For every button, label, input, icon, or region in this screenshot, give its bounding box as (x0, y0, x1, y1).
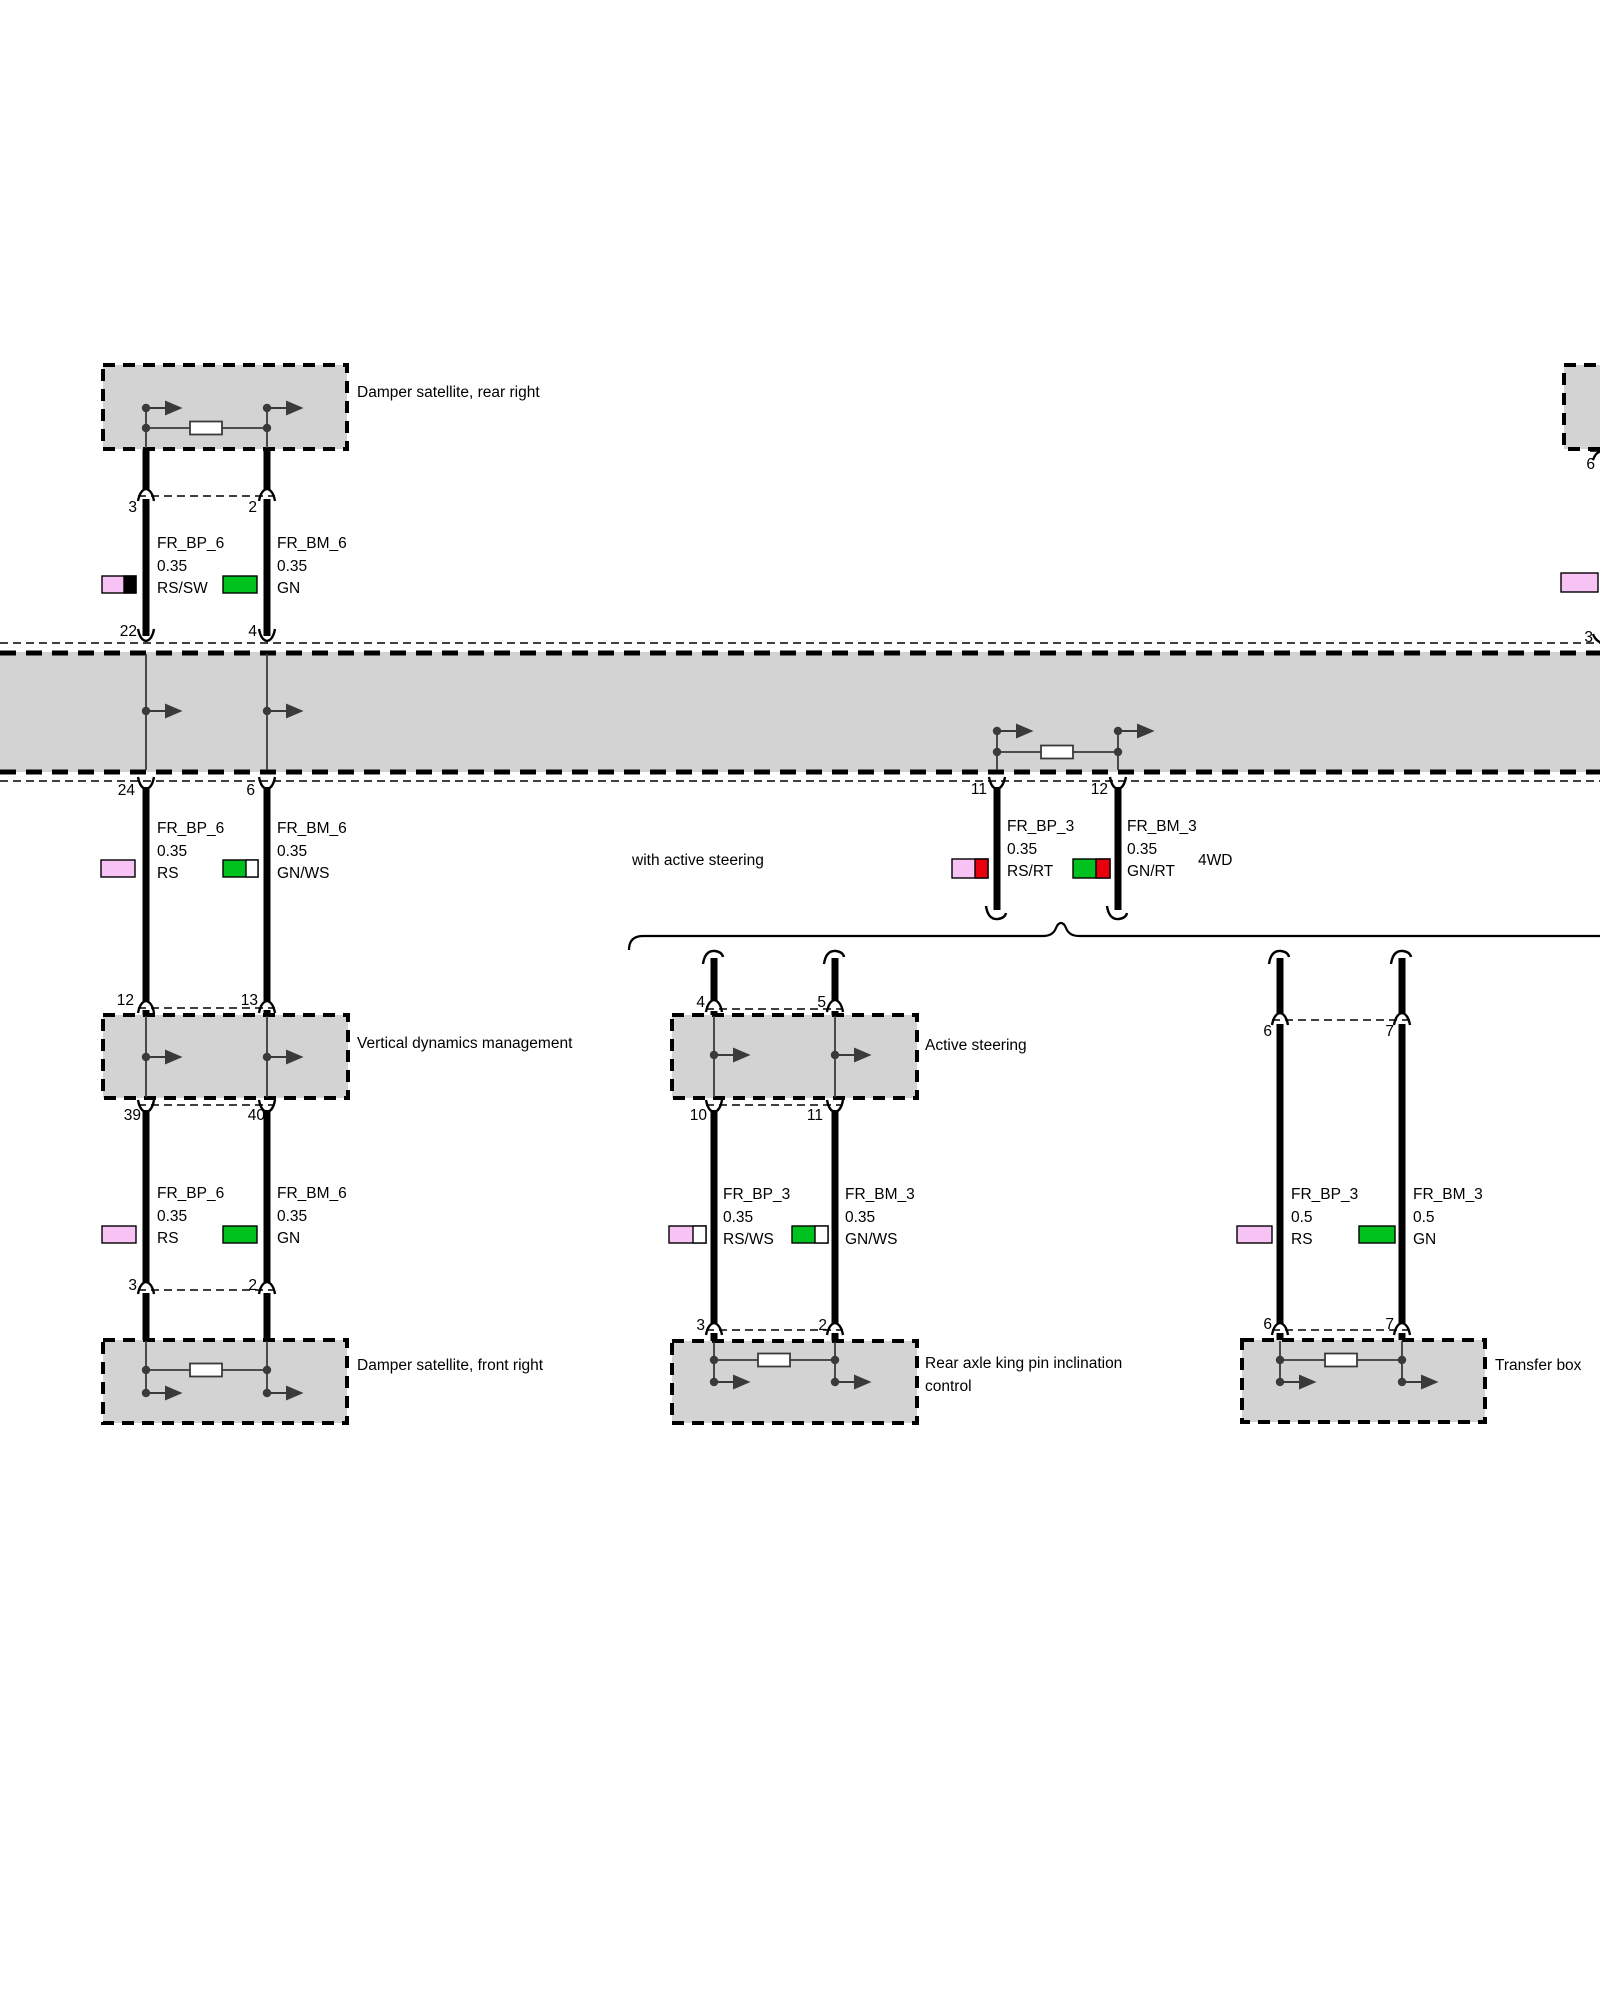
swatch-edge-rs (1561, 573, 1598, 592)
wire-label-seg1-right: FR_BM_6 0.35 GN (277, 533, 347, 601)
pin-label-as-top-left: 4 (657, 993, 705, 1012)
pin-label-tb-top-right: 7 (1346, 1022, 1394, 1041)
wire-label-seg1-left: FR_BP_6 0.35 RS/SW (157, 533, 224, 601)
pin-label-seg1-top-right: 2 (209, 498, 257, 517)
wire-name: FR_BP_3 (1291, 1184, 1358, 1207)
box-label-vertical-dynamics-management: Vertical dynamics management (357, 1034, 572, 1053)
wires-brace-to-transfer-box (1269, 951, 1411, 1341)
wire-name: FR_BM_6 (277, 533, 347, 556)
box-vertical-dynamics-management (103, 1015, 348, 1098)
wire-color-code: RS (157, 863, 224, 886)
swatch-mid-right-gn-rt (1073, 859, 1110, 878)
pin-label-seg1-bottom-left: 22 (89, 622, 137, 641)
note-with-active-steering: with active steering (632, 851, 764, 870)
pin-label-tb-bottom-right: 7 (1346, 1315, 1394, 1334)
pin-label-seg2-bottom-left: 12 (86, 991, 134, 1010)
swatch-seg2-right-gn-ws (223, 860, 258, 877)
note-4wd: 4WD (1198, 851, 1232, 870)
wire-size: 0.35 (723, 1207, 790, 1230)
pin-label-seg1-top-left: 3 (89, 498, 137, 517)
wire-color-code: RS (157, 1228, 224, 1251)
box-damper-satellite-front-right (103, 1340, 347, 1423)
wire-label-as-right: FR_BM_3 0.35 GN/WS (845, 1184, 915, 1252)
pin-label-seg3-top-right: 40 (217, 1106, 265, 1125)
box-active-steering (672, 1015, 917, 1098)
wire-color-code: GN/WS (845, 1229, 915, 1252)
pin-label-edge-top: 6 (1547, 455, 1595, 474)
box-transfer-box (1242, 1340, 1485, 1422)
wire-size: 0.35 (277, 556, 347, 579)
wire-label-mid-left: FR_BP_3 0.35 RS/RT (1007, 816, 1074, 884)
wiring-diagram-page: Damper satellite, rear right Vertical dy… (0, 0, 1600, 2000)
wire-name: FR_BM_6 (277, 818, 347, 841)
box-label-active-steering: Active steering (925, 1036, 1027, 1055)
wire-name: FR_BM_3 (845, 1184, 915, 1207)
swatch-as-left-rs-ws (669, 1226, 706, 1243)
wire-name: FR_BM_3 (1127, 816, 1197, 839)
pin-label-as-top-right: 5 (778, 993, 826, 1012)
pin-label-seg3-top-left: 39 (93, 1106, 141, 1125)
wire-color-code: GN (277, 1228, 347, 1251)
wire-name: FR_BP_6 (157, 1183, 224, 1206)
pin-label-tb-top-left: 6 (1224, 1022, 1272, 1041)
box-label-damper-satellite-front-right: Damper satellite, front right (357, 1356, 543, 1375)
wire-size: 0.5 (1291, 1207, 1358, 1230)
wire-color-code: RS/RT (1007, 861, 1074, 884)
wire-name: FR_BP_3 (1007, 816, 1074, 839)
pin-label-mid-right: 12 (1060, 780, 1108, 799)
pin-label-edge-bottom: 3 (1545, 628, 1593, 647)
wire-name: FR_BP_6 (157, 533, 224, 556)
wire-color-code: RS/WS (723, 1229, 790, 1252)
wire-size: 0.35 (157, 1206, 224, 1229)
wire-color-code: GN/RT (1127, 861, 1197, 884)
pin-label-seg1-bottom-right: 4 (209, 622, 257, 641)
pin-label-seg2-top-left: 24 (87, 781, 135, 800)
swatch-as-right-gn-ws (792, 1226, 828, 1243)
swatch-seg3-left-rs (102, 1226, 136, 1243)
wire-size: 0.35 (157, 841, 224, 864)
swatch-seg3-right-gn (223, 1226, 257, 1243)
wire-label-seg2-right: FR_BM_6 0.35 GN/WS (277, 818, 347, 886)
wire-color-code: RS/SW (157, 578, 224, 601)
swatch-seg2-left-rs (101, 860, 135, 877)
pin-label-mid-left: 11 (939, 780, 987, 799)
swatch-seg1-left-rs-sw (102, 576, 136, 593)
pin-label-as-bottom-right: 2 (779, 1316, 827, 1335)
wire-name: FR_BP_3 (723, 1184, 790, 1207)
box-edge-partial (1564, 365, 1600, 643)
wire-size: 0.35 (277, 1206, 347, 1229)
pin-label-seg3-bottom-left: 3 (89, 1276, 137, 1295)
wire-name: FR_BM_6 (277, 1183, 347, 1206)
wire-label-seg3-left: FR_BP_6 0.35 RS (157, 1183, 224, 1251)
wire-label-as-left: FR_BP_3 0.35 RS/WS (723, 1184, 790, 1252)
wire-color-code: GN/WS (277, 863, 347, 886)
box-label-transfer-box: Transfer box (1495, 1356, 1581, 1375)
pin-label-seg3-bottom-right: 2 (209, 1276, 257, 1295)
wire-label-seg3-right: FR_BM_6 0.35 GN (277, 1183, 347, 1251)
box-rear-axle-king-pin-inclination-control (672, 1341, 917, 1423)
wire-size: 0.35 (1007, 839, 1074, 862)
box-label-rear-axle-king-pin-inclination-control: Rear axle king pin inclination control (925, 1352, 1143, 1398)
swatch-mid-left-rs-rt (952, 859, 988, 878)
wire-size: 0.35 (157, 556, 224, 579)
wire-label-tb-left: FR_BP_3 0.5 RS (1291, 1184, 1358, 1252)
wire-label-mid-right: FR_BM_3 0.35 GN/RT (1127, 816, 1197, 884)
harness-band (0, 643, 1600, 781)
pin-label-tb-bottom-left: 6 (1224, 1315, 1272, 1334)
wire-size: 0.35 (277, 841, 347, 864)
wire-color-code: RS (1291, 1229, 1358, 1252)
pin-label-seg2-bottom-right: 13 (210, 991, 258, 1010)
option-brace (629, 923, 1600, 950)
pin-label-seg2-top-right: 6 (207, 781, 255, 800)
wire-size: 0.35 (845, 1207, 915, 1230)
swatch-seg1-right-gn (223, 576, 257, 593)
wire-color-code: GN (277, 578, 347, 601)
wire-label-tb-right: FR_BM_3 0.5 GN (1413, 1184, 1483, 1252)
swatch-tb-right-gn (1359, 1226, 1395, 1243)
pin-label-as-mid-right: 11 (775, 1106, 823, 1125)
wire-name: FR_BM_3 (1413, 1184, 1483, 1207)
wire-label-seg2-left: FR_BP_6 0.35 RS (157, 818, 224, 886)
box-label-damper-satellite-rear-right: Damper satellite, rear right (357, 383, 540, 402)
pin-label-as-bottom-left: 3 (657, 1316, 705, 1335)
wire-size: 0.5 (1413, 1207, 1483, 1230)
wire-color-code: GN (1413, 1229, 1483, 1252)
wires-band-to-vdm (138, 777, 275, 1016)
pin-label-as-mid-left: 10 (659, 1106, 707, 1125)
swatch-tb-left-rs (1237, 1226, 1272, 1243)
wire-name: FR_BP_6 (157, 818, 224, 841)
box-damper-satellite-rear-right (103, 365, 347, 449)
wire-size: 0.35 (1127, 839, 1197, 862)
